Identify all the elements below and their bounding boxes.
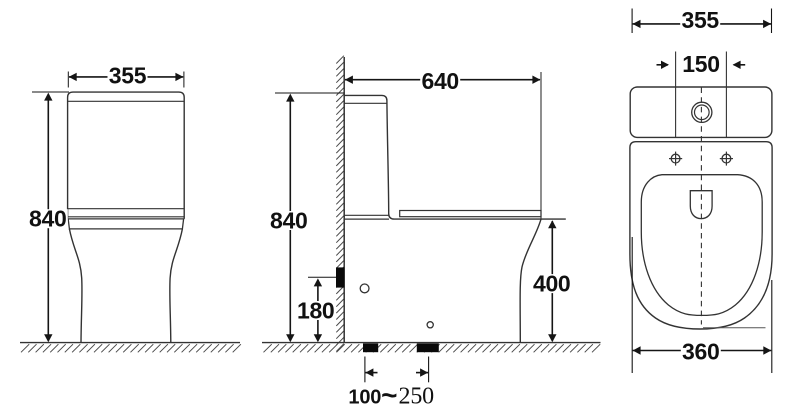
svg-text:840: 840 xyxy=(29,206,66,232)
svg-text:180: 180 xyxy=(297,298,334,324)
svg-text:400: 400 xyxy=(533,271,570,297)
svg-text:150: 150 xyxy=(682,51,719,77)
svg-text:355: 355 xyxy=(109,62,147,88)
svg-text:840: 840 xyxy=(270,208,307,234)
svg-text:640: 640 xyxy=(421,68,458,94)
svg-text:360: 360 xyxy=(682,339,719,365)
svg-text:355: 355 xyxy=(681,7,719,33)
